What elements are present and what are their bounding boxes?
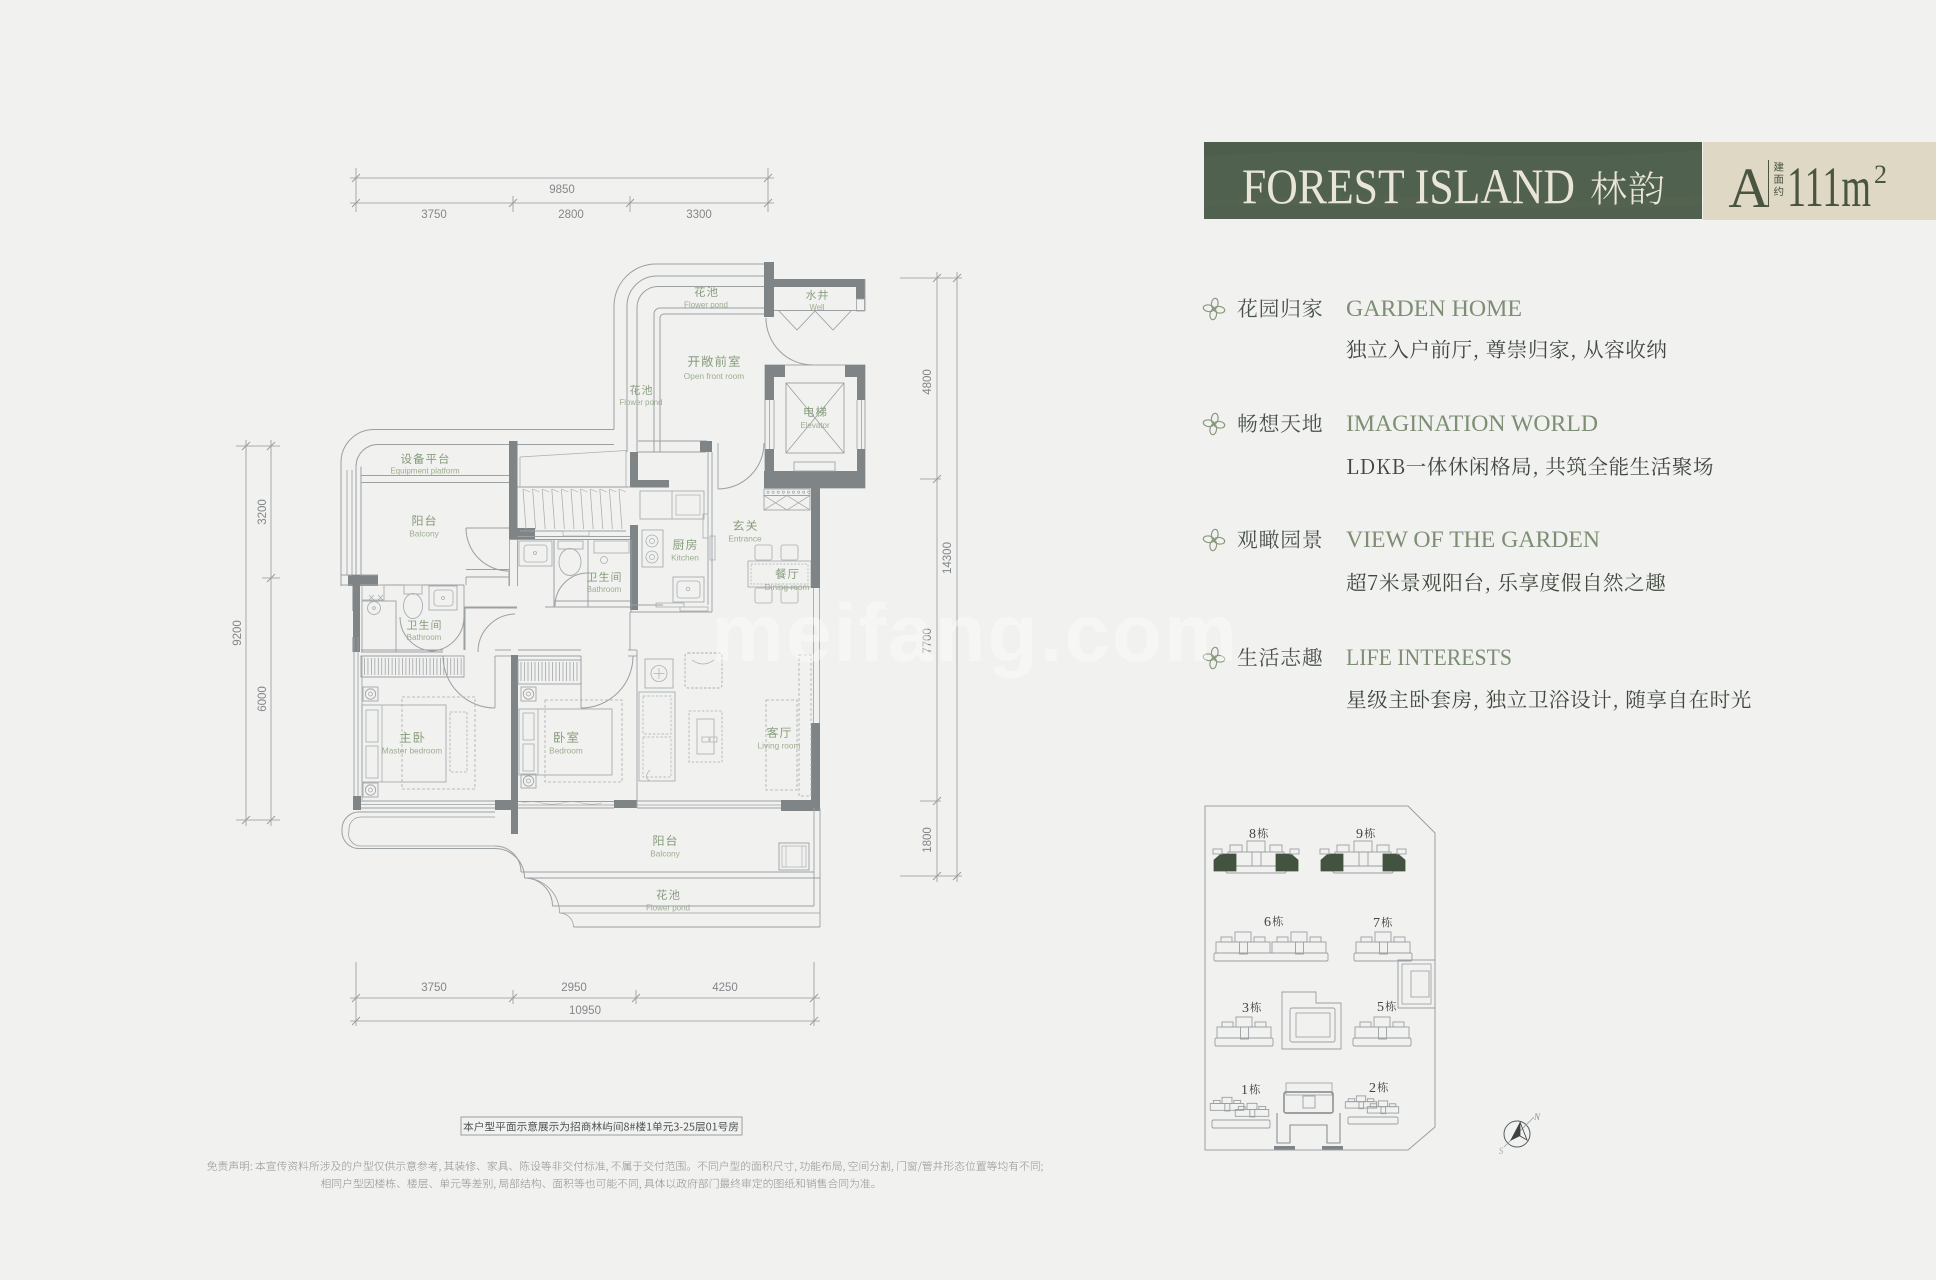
svg-text:meifang.com: meifang.com <box>711 588 1239 679</box>
svg-text:2950: 2950 <box>561 982 587 994</box>
svg-text:Open front room: Open front room <box>684 371 745 381</box>
svg-text:111m: 111m <box>1787 156 1871 219</box>
svg-text:Entrance: Entrance <box>728 534 762 544</box>
svg-text:Balcony: Balcony <box>650 849 680 859</box>
svg-text:3750: 3750 <box>421 209 447 221</box>
svg-text:1: 1 <box>1241 1083 1248 1098</box>
svg-text:Balcony: Balcony <box>409 529 439 539</box>
svg-text:9200: 9200 <box>232 620 244 646</box>
svg-text:8: 8 <box>1249 827 1256 842</box>
svg-text:Flower pond: Flower pond <box>620 398 663 407</box>
svg-text:Master bedroom: Master bedroom <box>382 746 442 756</box>
svg-text:3200: 3200 <box>257 499 269 525</box>
svg-text:2800: 2800 <box>558 209 584 221</box>
svg-text:Elevator: Elevator <box>800 421 830 430</box>
svg-text:GARDEN HOME: GARDEN HOME <box>1346 296 1522 321</box>
svg-text:Living room: Living room <box>758 741 801 751</box>
svg-text:2: 2 <box>1874 160 1887 189</box>
svg-text:Flower pond: Flower pond <box>646 904 690 913</box>
svg-text:Flower pond: Flower pond <box>684 301 728 310</box>
svg-text:10950: 10950 <box>569 1005 601 1017</box>
svg-text:4800: 4800 <box>922 369 934 395</box>
svg-text:3300: 3300 <box>686 209 712 221</box>
svg-text:Bathroom: Bathroom <box>587 585 622 594</box>
svg-text:Bathroom: Bathroom <box>407 633 442 642</box>
svg-text:IMAGINATION WORLD: IMAGINATION WORLD <box>1346 411 1598 436</box>
svg-text:9850: 9850 <box>549 184 575 196</box>
svg-text:Equipment platform: Equipment platform <box>390 467 460 476</box>
svg-text:5: 5 <box>1377 1000 1384 1015</box>
svg-text:6: 6 <box>1264 915 1271 930</box>
svg-text:4250: 4250 <box>712 982 738 994</box>
svg-text:FOREST ISLAND: FOREST ISLAND <box>1242 158 1575 214</box>
svg-text:14300: 14300 <box>942 542 954 574</box>
svg-text:LIFE INTERESTS: LIFE INTERESTS <box>1346 645 1512 670</box>
svg-text:6000: 6000 <box>257 686 269 712</box>
svg-text:N: N <box>1533 1112 1541 1122</box>
svg-text:S: S <box>1499 1146 1504 1156</box>
svg-text:A: A <box>1728 157 1769 220</box>
svg-text:Bedroom: Bedroom <box>549 746 583 756</box>
svg-text:VIEW OF THE GARDEN: VIEW OF THE GARDEN <box>1346 527 1600 552</box>
svg-text:3750: 3750 <box>421 982 447 994</box>
svg-text:Well: Well <box>809 303 824 312</box>
svg-text:9: 9 <box>1356 827 1363 842</box>
svg-text:7: 7 <box>1373 916 1380 931</box>
svg-text:1800: 1800 <box>922 827 934 853</box>
svg-text:Kitchen: Kitchen <box>671 553 699 563</box>
svg-text:3: 3 <box>1242 1001 1249 1016</box>
svg-text:2: 2 <box>1369 1081 1376 1096</box>
